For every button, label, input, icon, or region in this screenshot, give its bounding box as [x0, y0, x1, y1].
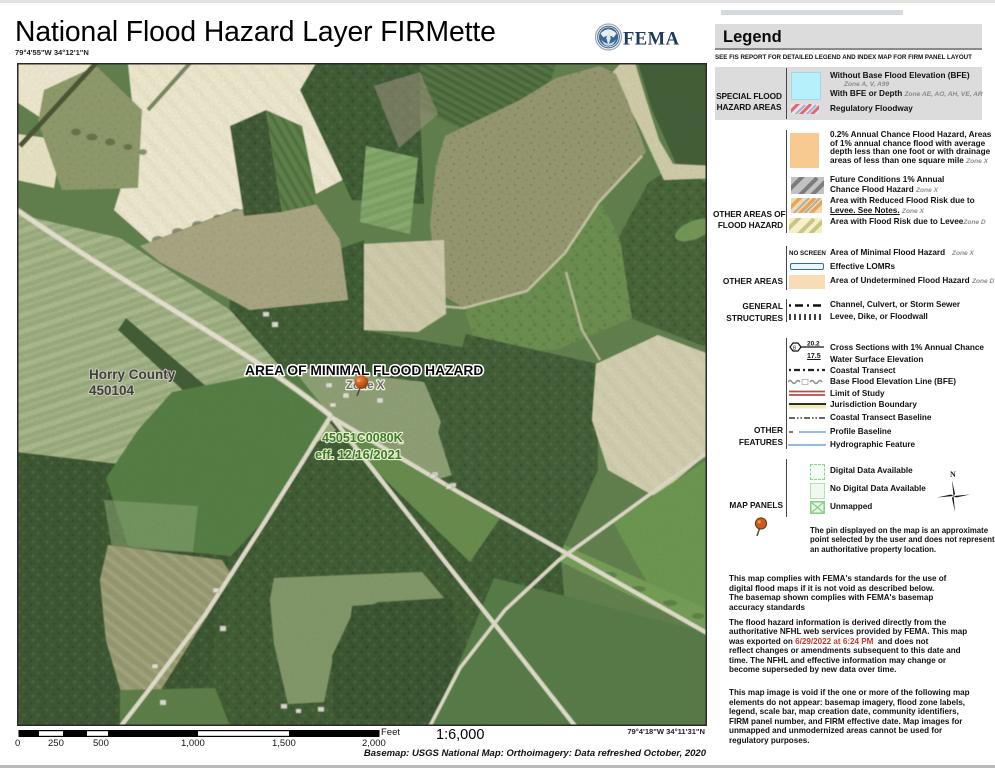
svg-text:Horry County: Horry County	[89, 367, 176, 382]
svg-text:AREA OF MINIMAL FLOOD HAZARD: AREA OF MINIMAL FLOOD HAZARD	[245, 363, 483, 378]
svg-text:450104: 450104	[89, 383, 135, 398]
svg-text:N: N	[950, 470, 956, 479]
svg-text:45051C0080K: 45051C0080K	[322, 431, 403, 445]
svg-text:eff. 12/16/2021: eff. 12/16/2021	[315, 447, 402, 462]
svg-text:20.2: 20.2	[807, 341, 820, 348]
svg-text:FEMA: FEMA	[623, 30, 680, 50]
